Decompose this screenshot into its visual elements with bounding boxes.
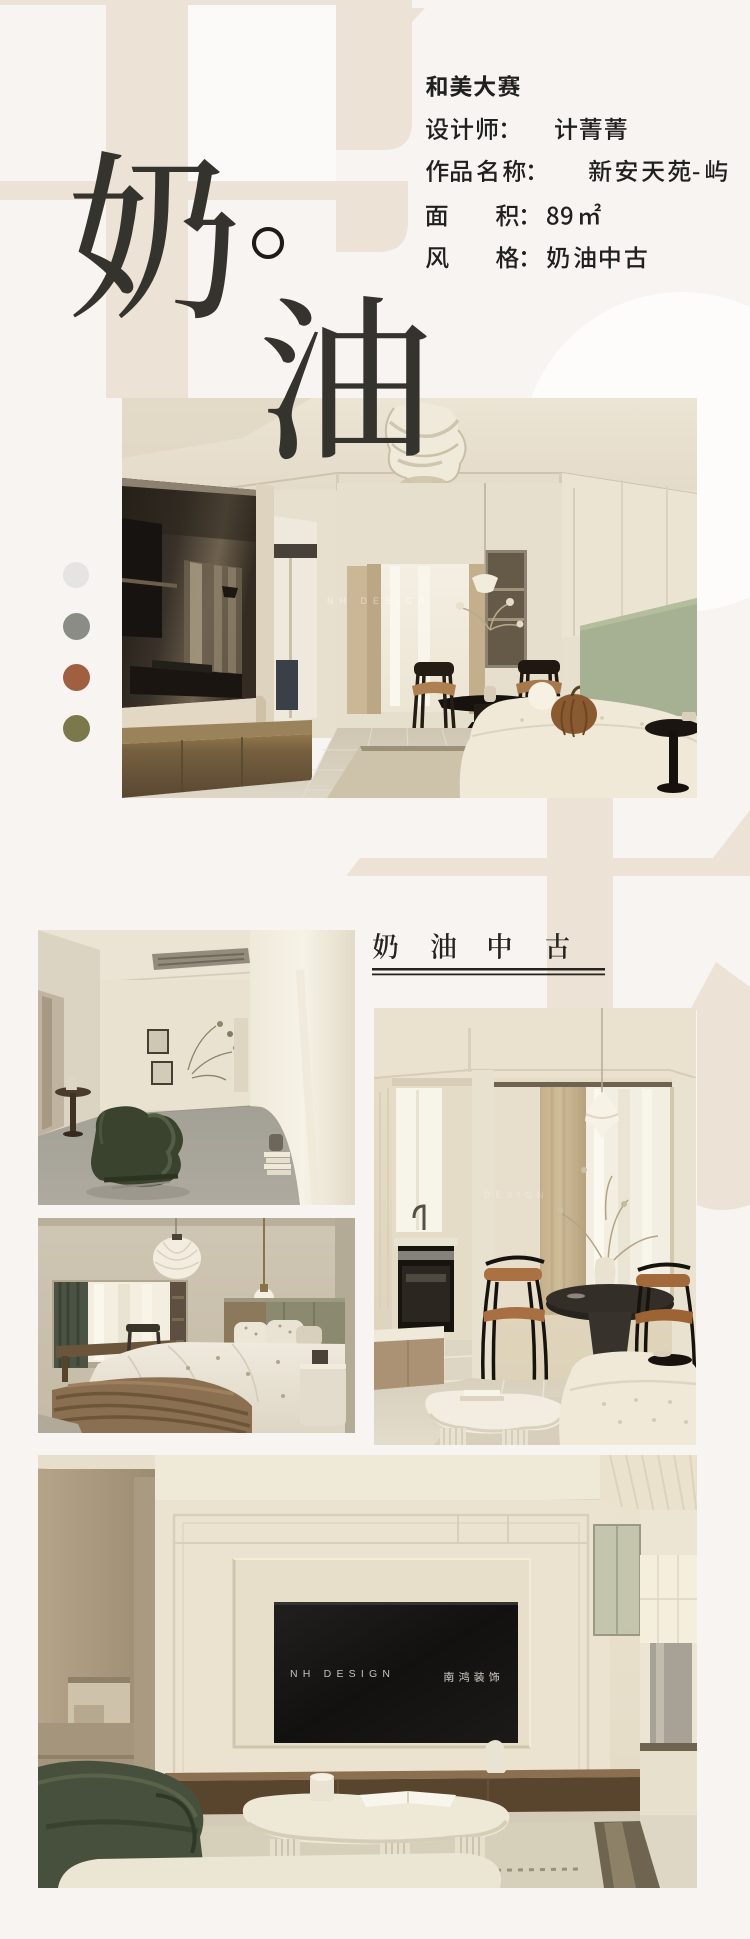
svg-text:NH DESIGN: NH DESIGN (290, 1668, 395, 1680)
svg-text:DESIGN: DESIGN (484, 1190, 549, 1200)
